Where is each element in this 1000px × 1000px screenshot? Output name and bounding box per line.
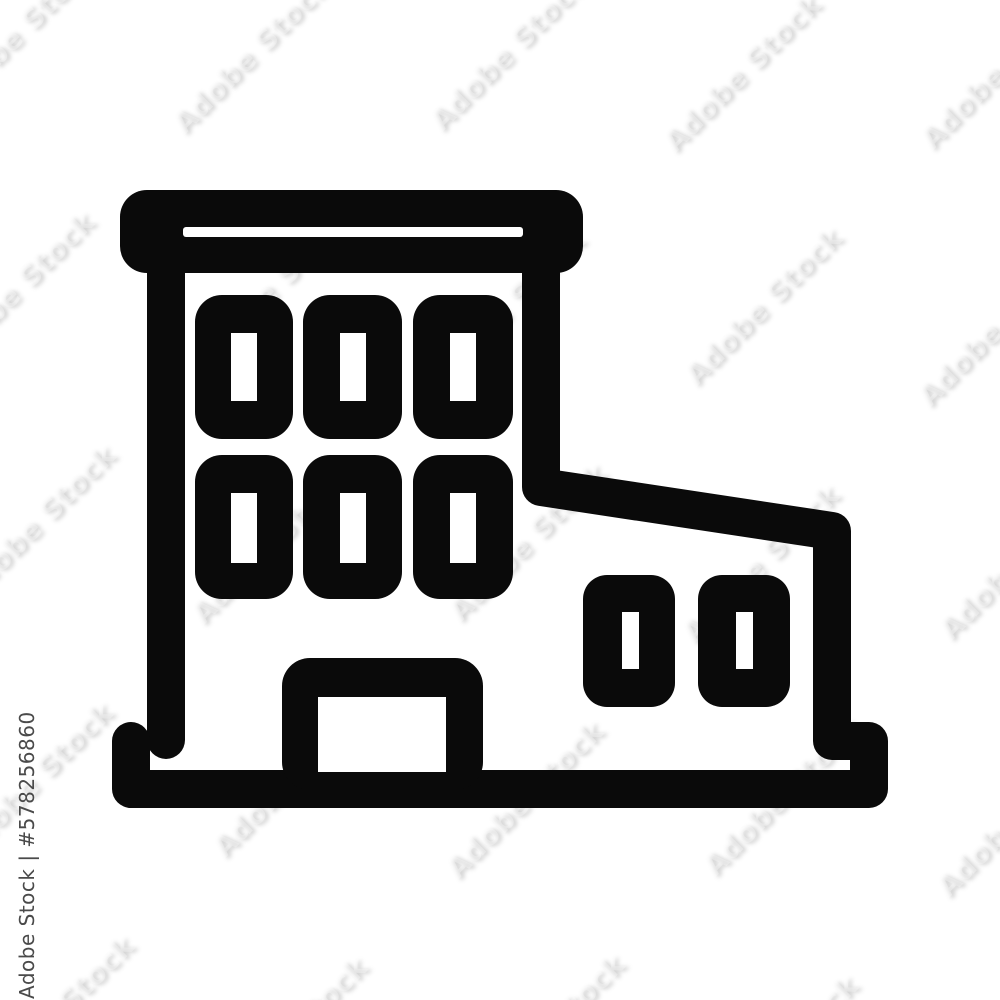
window-pane (340, 333, 366, 401)
window-pane (231, 333, 257, 401)
roof-parapet-stripe (183, 227, 523, 237)
window-pane (450, 493, 476, 563)
window-pane (450, 333, 476, 401)
annex-window-pane (736, 612, 753, 669)
stock-image-canvas: Adobe StockAdobe StockAdobe StockAdobe S… (0, 0, 1000, 1000)
building-fill-group (120, 190, 790, 790)
office-building-icon (0, 0, 1000, 1000)
stock-id-watermark: Adobe Stock | #578256860 (15, 711, 39, 999)
window-pane (231, 493, 257, 563)
window-pane (340, 493, 366, 563)
door-opening (318, 697, 446, 772)
annex-window-pane (622, 612, 639, 669)
